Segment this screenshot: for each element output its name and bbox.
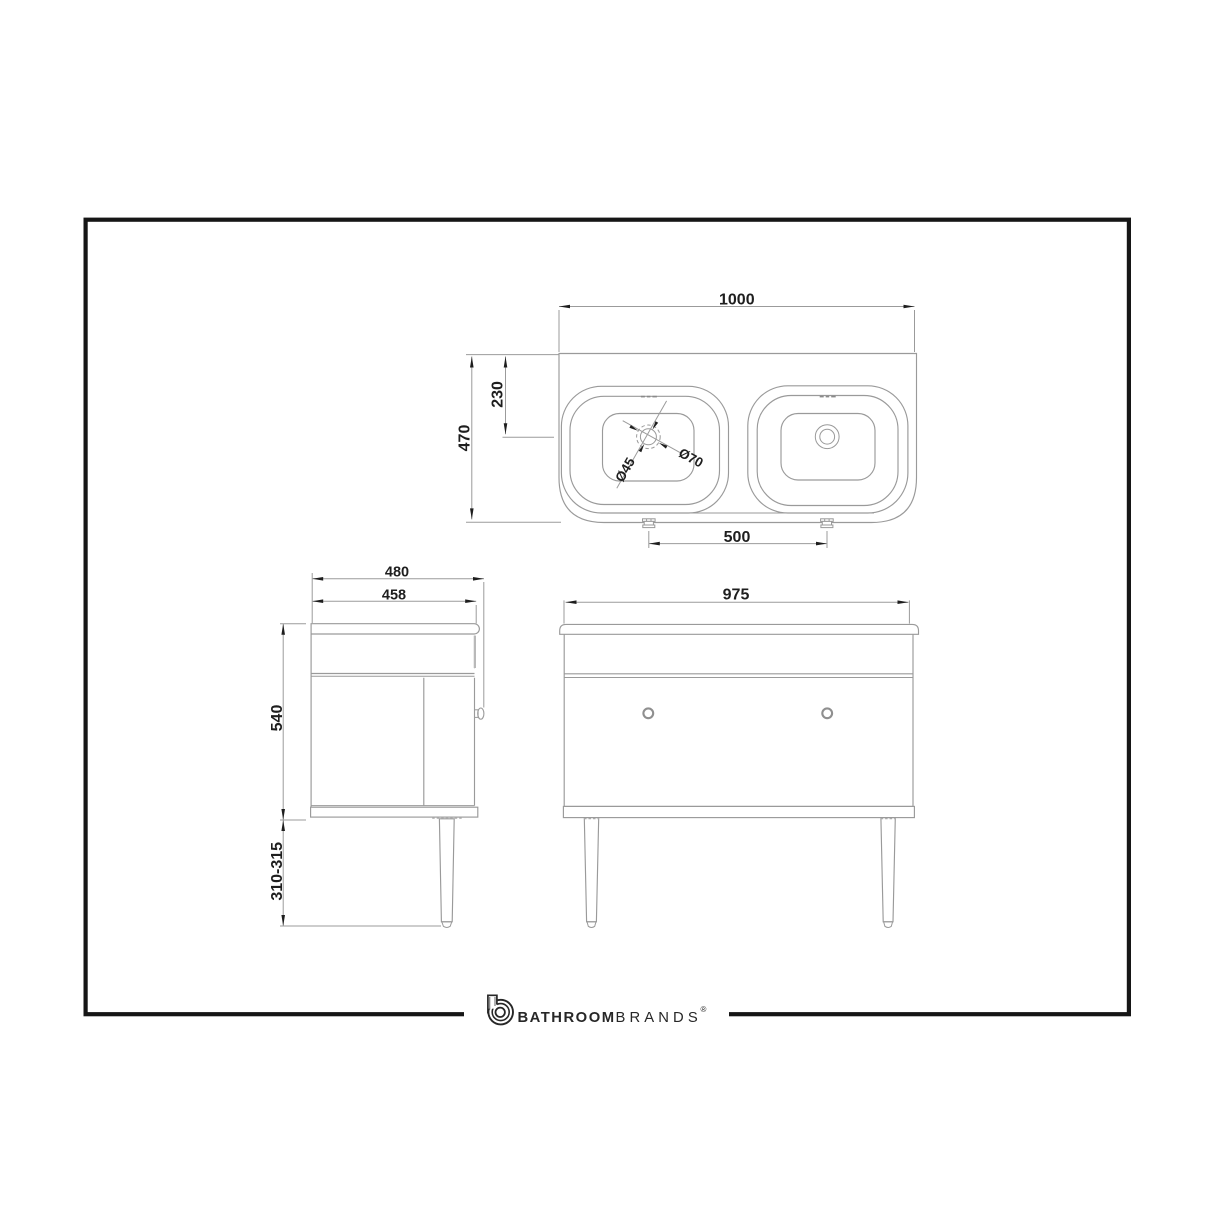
svg-text:458: 458: [382, 588, 406, 604]
svg-text:540: 540: [269, 705, 286, 732]
svg-text:470: 470: [456, 425, 473, 452]
svg-text:310-315: 310-315: [269, 842, 286, 901]
svg-text:®: ®: [701, 1005, 707, 1014]
svg-text:480: 480: [385, 564, 409, 580]
svg-text:500: 500: [724, 529, 751, 546]
svg-text:1000: 1000: [719, 291, 755, 308]
svg-text:BATHROOMBRANDS: BATHROOMBRANDS: [518, 1010, 702, 1026]
svg-text:230: 230: [490, 381, 507, 408]
svg-text:975: 975: [723, 587, 750, 604]
